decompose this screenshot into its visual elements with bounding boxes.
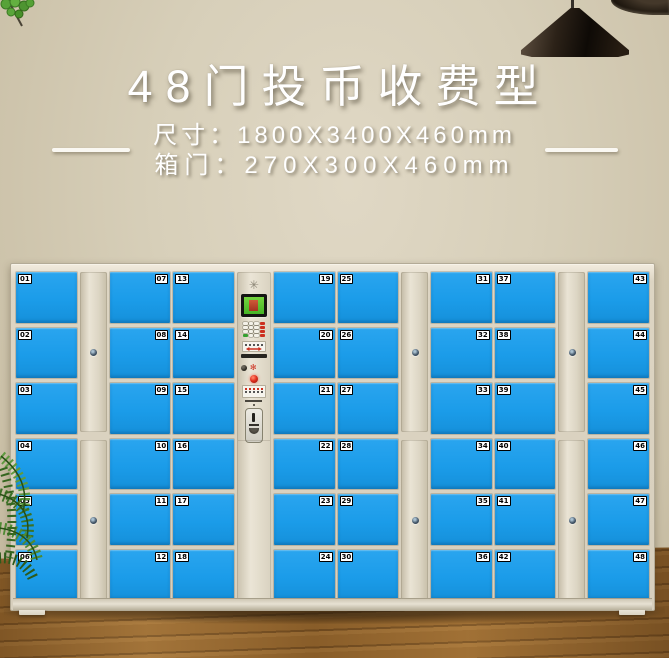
plant-leaves-icon [0, 0, 46, 47]
locker-divider [558, 272, 585, 600]
locker-door[interactable]: 33 [431, 383, 492, 434]
door-number-label: 32 [476, 330, 490, 340]
door-number-label: 24 [319, 552, 333, 562]
door-number-label: 15 [175, 385, 189, 395]
door-number-label: 14 [175, 330, 189, 340]
cabinet-foot-left [19, 605, 45, 615]
door-number-label: 29 [340, 496, 354, 506]
door-number-label: 25 [340, 274, 354, 284]
lock-icon[interactable] [412, 517, 419, 524]
door-number-label: 44 [633, 330, 647, 340]
locker-columns: 01 02 03 04 05 06 07 08 09 10 11 12 13 1… [16, 272, 649, 600]
spec-size-line: 尺寸：1800X3400X460mm [0, 121, 669, 151]
door-number-label: 41 [497, 496, 511, 506]
locker-door-column: 19 20 21 22 23 24 [274, 272, 335, 600]
locker-door[interactable]: 39 [495, 383, 556, 434]
door-number-label: 02 [18, 330, 32, 340]
lock-icon[interactable] [90, 349, 97, 356]
control-panel: ✳ ✻ [237, 272, 271, 600]
locker-door[interactable]: 24 [274, 550, 335, 601]
keypad[interactable] [243, 322, 265, 337]
locker-door[interactable]: 14 [173, 328, 234, 379]
door-number-label: 37 [497, 274, 511, 284]
divider-panel-upper [401, 272, 428, 432]
instruction-label [242, 341, 266, 352]
locker-door[interactable]: 29 [338, 494, 399, 545]
locker-door-column: 43 44 45 46 47 48 [588, 272, 649, 600]
keypad-key[interactable] [249, 334, 254, 337]
display-screen-glass [244, 297, 264, 314]
locker-door[interactable]: 20 [274, 328, 335, 379]
locker-door[interactable]: 10 [110, 439, 171, 490]
door-number-label: 13 [175, 274, 189, 284]
keypad-key[interactable] [260, 326, 265, 329]
door-number-label: 09 [155, 385, 169, 395]
notice-label [242, 385, 266, 398]
power-button[interactable] [241, 365, 247, 371]
locker-door[interactable]: 21 [274, 383, 335, 434]
locker-door[interactable]: 34 [431, 439, 492, 490]
locker-door-column: 07 08 09 10 11 12 [110, 272, 171, 600]
door-number-label: 22 [319, 441, 333, 451]
locker-door[interactable]: 25 [338, 272, 399, 323]
card-slot[interactable] [241, 354, 267, 358]
door-number-label: 40 [497, 441, 511, 451]
panel-seam [238, 440, 270, 441]
locker-door[interactable]: 07 [110, 272, 171, 323]
decor-dash-left [52, 148, 130, 152]
door-number-label: 10 [155, 441, 169, 451]
locker-door[interactable]: 38 [495, 328, 556, 379]
locker-door[interactable]: 11 [110, 494, 171, 545]
keypad-key[interactable] [254, 334, 259, 337]
locker-door[interactable]: 27 [338, 383, 399, 434]
decor-dash-right [545, 148, 618, 152]
door-number-label: 28 [340, 441, 354, 451]
label-text-marks [245, 344, 263, 346]
cabinet-foot-right [619, 605, 645, 615]
product-scene: 48门投币收费型 尺寸：1800X3400X460mm 箱门：270X300X4… [0, 0, 669, 658]
spark-icon: ✻ [250, 364, 255, 372]
door-number-label: 33 [476, 385, 490, 395]
locker-door[interactable]: 13 [173, 272, 234, 323]
label-underline [245, 400, 262, 402]
locker-door[interactable]: 47 [588, 494, 649, 545]
locker-door[interactable]: 01 [16, 272, 77, 323]
locker-door[interactable]: 09 [110, 383, 171, 434]
divider-panel-lower [80, 440, 107, 600]
door-number-label: 30 [340, 552, 354, 562]
label-text-marks [245, 391, 263, 393]
door-number-label: 03 [18, 385, 32, 395]
door-number-label: 12 [155, 552, 169, 562]
locker-door[interactable]: 08 [110, 328, 171, 379]
keypad-key[interactable] [260, 322, 265, 325]
keypad-key[interactable] [243, 326, 248, 329]
door-number-label: 27 [340, 385, 354, 395]
vent-star-icon: ✳ [237, 278, 271, 292]
locker-door[interactable]: 22 [274, 439, 335, 490]
status-led [250, 375, 258, 383]
door-number-label: 20 [319, 330, 333, 340]
locker-door[interactable]: 44 [588, 328, 649, 379]
door-number-label: 38 [497, 330, 511, 340]
door-number-label: 43 [633, 274, 647, 284]
locker-door[interactable]: 30 [338, 550, 399, 601]
screw-icon [253, 404, 255, 406]
keypad-key[interactable] [243, 334, 248, 337]
locker-door[interactable]: 31 [431, 272, 492, 323]
locker-door[interactable]: 16 [173, 439, 234, 490]
door-number-label: 36 [476, 552, 490, 562]
locker-divider [401, 272, 428, 600]
locker-door[interactable]: 45 [588, 383, 649, 434]
locker-divider [80, 272, 107, 600]
door-number-label: 45 [633, 385, 647, 395]
locker-door[interactable]: 17 [173, 494, 234, 545]
locker-cabinet: 01 02 03 04 05 06 07 08 09 10 11 12 13 1… [10, 263, 655, 611]
locker-door[interactable]: 37 [495, 272, 556, 323]
door-number-label: 46 [633, 441, 647, 451]
door-number-label: 01 [18, 274, 32, 284]
locker-door[interactable]: 15 [173, 383, 234, 434]
divider-panel-upper [558, 272, 585, 432]
door-number-label: 48 [633, 552, 647, 562]
door-number-label: 26 [340, 330, 354, 340]
coin-acceptor[interactable] [245, 408, 263, 443]
coin-return-icon[interactable] [249, 428, 259, 434]
divider-panel-lower [401, 440, 428, 600]
locker-door[interactable]: 48 [588, 550, 649, 601]
door-number-label: 07 [155, 274, 169, 284]
arrow-icon [246, 347, 262, 351]
locker-door-column: 37 38 39 40 41 42 [495, 272, 556, 600]
door-number-label: 47 [633, 496, 647, 506]
keypad-key[interactable] [260, 330, 265, 333]
indicator-row: ✻ [241, 363, 267, 372]
keypad-key[interactable] [260, 334, 265, 337]
coin-lever-icon [249, 424, 259, 426]
keypad-key[interactable] [254, 326, 259, 329]
door-number-label: 34 [476, 441, 490, 451]
product-title: 48门投币收费型 [0, 50, 669, 115]
palm-plant-icon [0, 408, 63, 591]
keypad-key[interactable] [249, 322, 254, 325]
door-number-label: 11 [155, 496, 169, 506]
locker-door[interactable]: 12 [110, 550, 171, 601]
door-number-label: 21 [319, 385, 333, 395]
locker-door-column: 31 32 33 34 35 36 [431, 272, 492, 600]
lock-icon[interactable] [569, 517, 576, 524]
locker-door[interactable]: 26 [338, 328, 399, 379]
label-red-text-marks [245, 388, 263, 390]
locker-door[interactable]: 40 [495, 439, 556, 490]
keypad-key[interactable] [254, 322, 259, 325]
door-number-label: 18 [175, 552, 189, 562]
locker-door-column: 13 14 15 16 17 18 [173, 272, 234, 600]
keypad-key[interactable] [254, 330, 259, 333]
locker-door[interactable]: 32 [431, 328, 492, 379]
coin-slot-icon[interactable] [252, 413, 255, 422]
keypad-key[interactable] [249, 326, 254, 329]
locker-door[interactable]: 02 [16, 328, 77, 379]
divider-panel-upper [80, 272, 107, 432]
spec-door-line: 箱门：270X300X460mm [0, 151, 669, 181]
locker-door[interactable]: 46 [588, 439, 649, 490]
door-number-label: 31 [476, 274, 490, 284]
locker-door[interactable]: 42 [495, 550, 556, 601]
door-number-label: 39 [497, 385, 511, 395]
door-number-label: 08 [155, 330, 169, 340]
door-number-label: 23 [319, 496, 333, 506]
locker-door[interactable]: 41 [495, 494, 556, 545]
display-content [249, 300, 258, 311]
locker-door-column: 25 26 27 28 29 30 [338, 272, 399, 600]
door-number-label: 16 [175, 441, 189, 451]
divider-panel-lower [558, 440, 585, 600]
keypad-key[interactable] [243, 330, 248, 333]
locker-door[interactable]: 36 [431, 550, 492, 601]
locker-door[interactable]: 19 [274, 272, 335, 323]
door-number-label: 19 [319, 274, 333, 284]
locker-door[interactable]: 23 [274, 494, 335, 545]
lock-icon[interactable] [90, 517, 97, 524]
display-screen [241, 294, 267, 317]
locker-door[interactable]: 28 [338, 439, 399, 490]
keypad-key[interactable] [243, 322, 248, 325]
lock-icon[interactable] [412, 349, 419, 356]
locker-door[interactable]: 18 [173, 550, 234, 601]
keypad-key[interactable] [249, 330, 254, 333]
door-number-label: 42 [497, 552, 511, 562]
door-number-label: 17 [175, 496, 189, 506]
locker-door[interactable]: 43 [588, 272, 649, 323]
lock-icon[interactable] [569, 349, 576, 356]
door-number-label: 35 [476, 496, 490, 506]
locker-door[interactable]: 35 [431, 494, 492, 545]
